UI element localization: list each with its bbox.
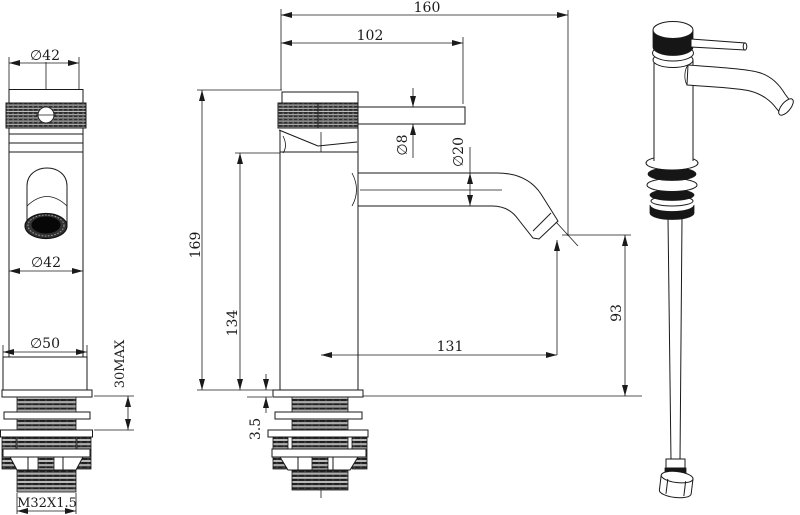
drawing-canvas: ∅42 ∅42 ∅50 30MAX M32X1.5 160 102 ∅8 ∅20…: [0, 0, 800, 515]
front-view: [1, 57, 135, 514]
hose-nut: [659, 470, 694, 500]
dim-label-body-height: 134: [225, 310, 241, 337]
dim-label-thread-spec: M32X1.5: [17, 496, 77, 511]
dim-label-flange-thickness: 3.5: [248, 418, 264, 440]
dim-label-handle-length: 102: [357, 28, 384, 44]
perspective-view: [646, 22, 796, 500]
dim-label-handle-rod-diameter: ∅8: [395, 134, 411, 155]
drawing-sheet: ∅42 ∅42 ∅50 30MAX M32X1.5 160 102 ∅8 ∅20…: [0, 0, 800, 515]
dim-label-outlet-height: 93: [609, 304, 625, 322]
dim-label-spout-reach: 131: [437, 339, 464, 355]
dim-label-spout-diameter: ∅42: [31, 255, 61, 271]
dim-label-spout-tube-diameter: ∅20: [451, 137, 467, 167]
dim-label-top-diameter: ∅42: [30, 48, 60, 64]
dim-label-max-mounting-thickness: 30MAX: [113, 339, 128, 388]
dim-label-overall-length: 160: [414, 0, 441, 16]
dim-label-base-diameter: ∅50: [30, 336, 60, 352]
dim-label-overall-height: 169: [188, 232, 204, 259]
